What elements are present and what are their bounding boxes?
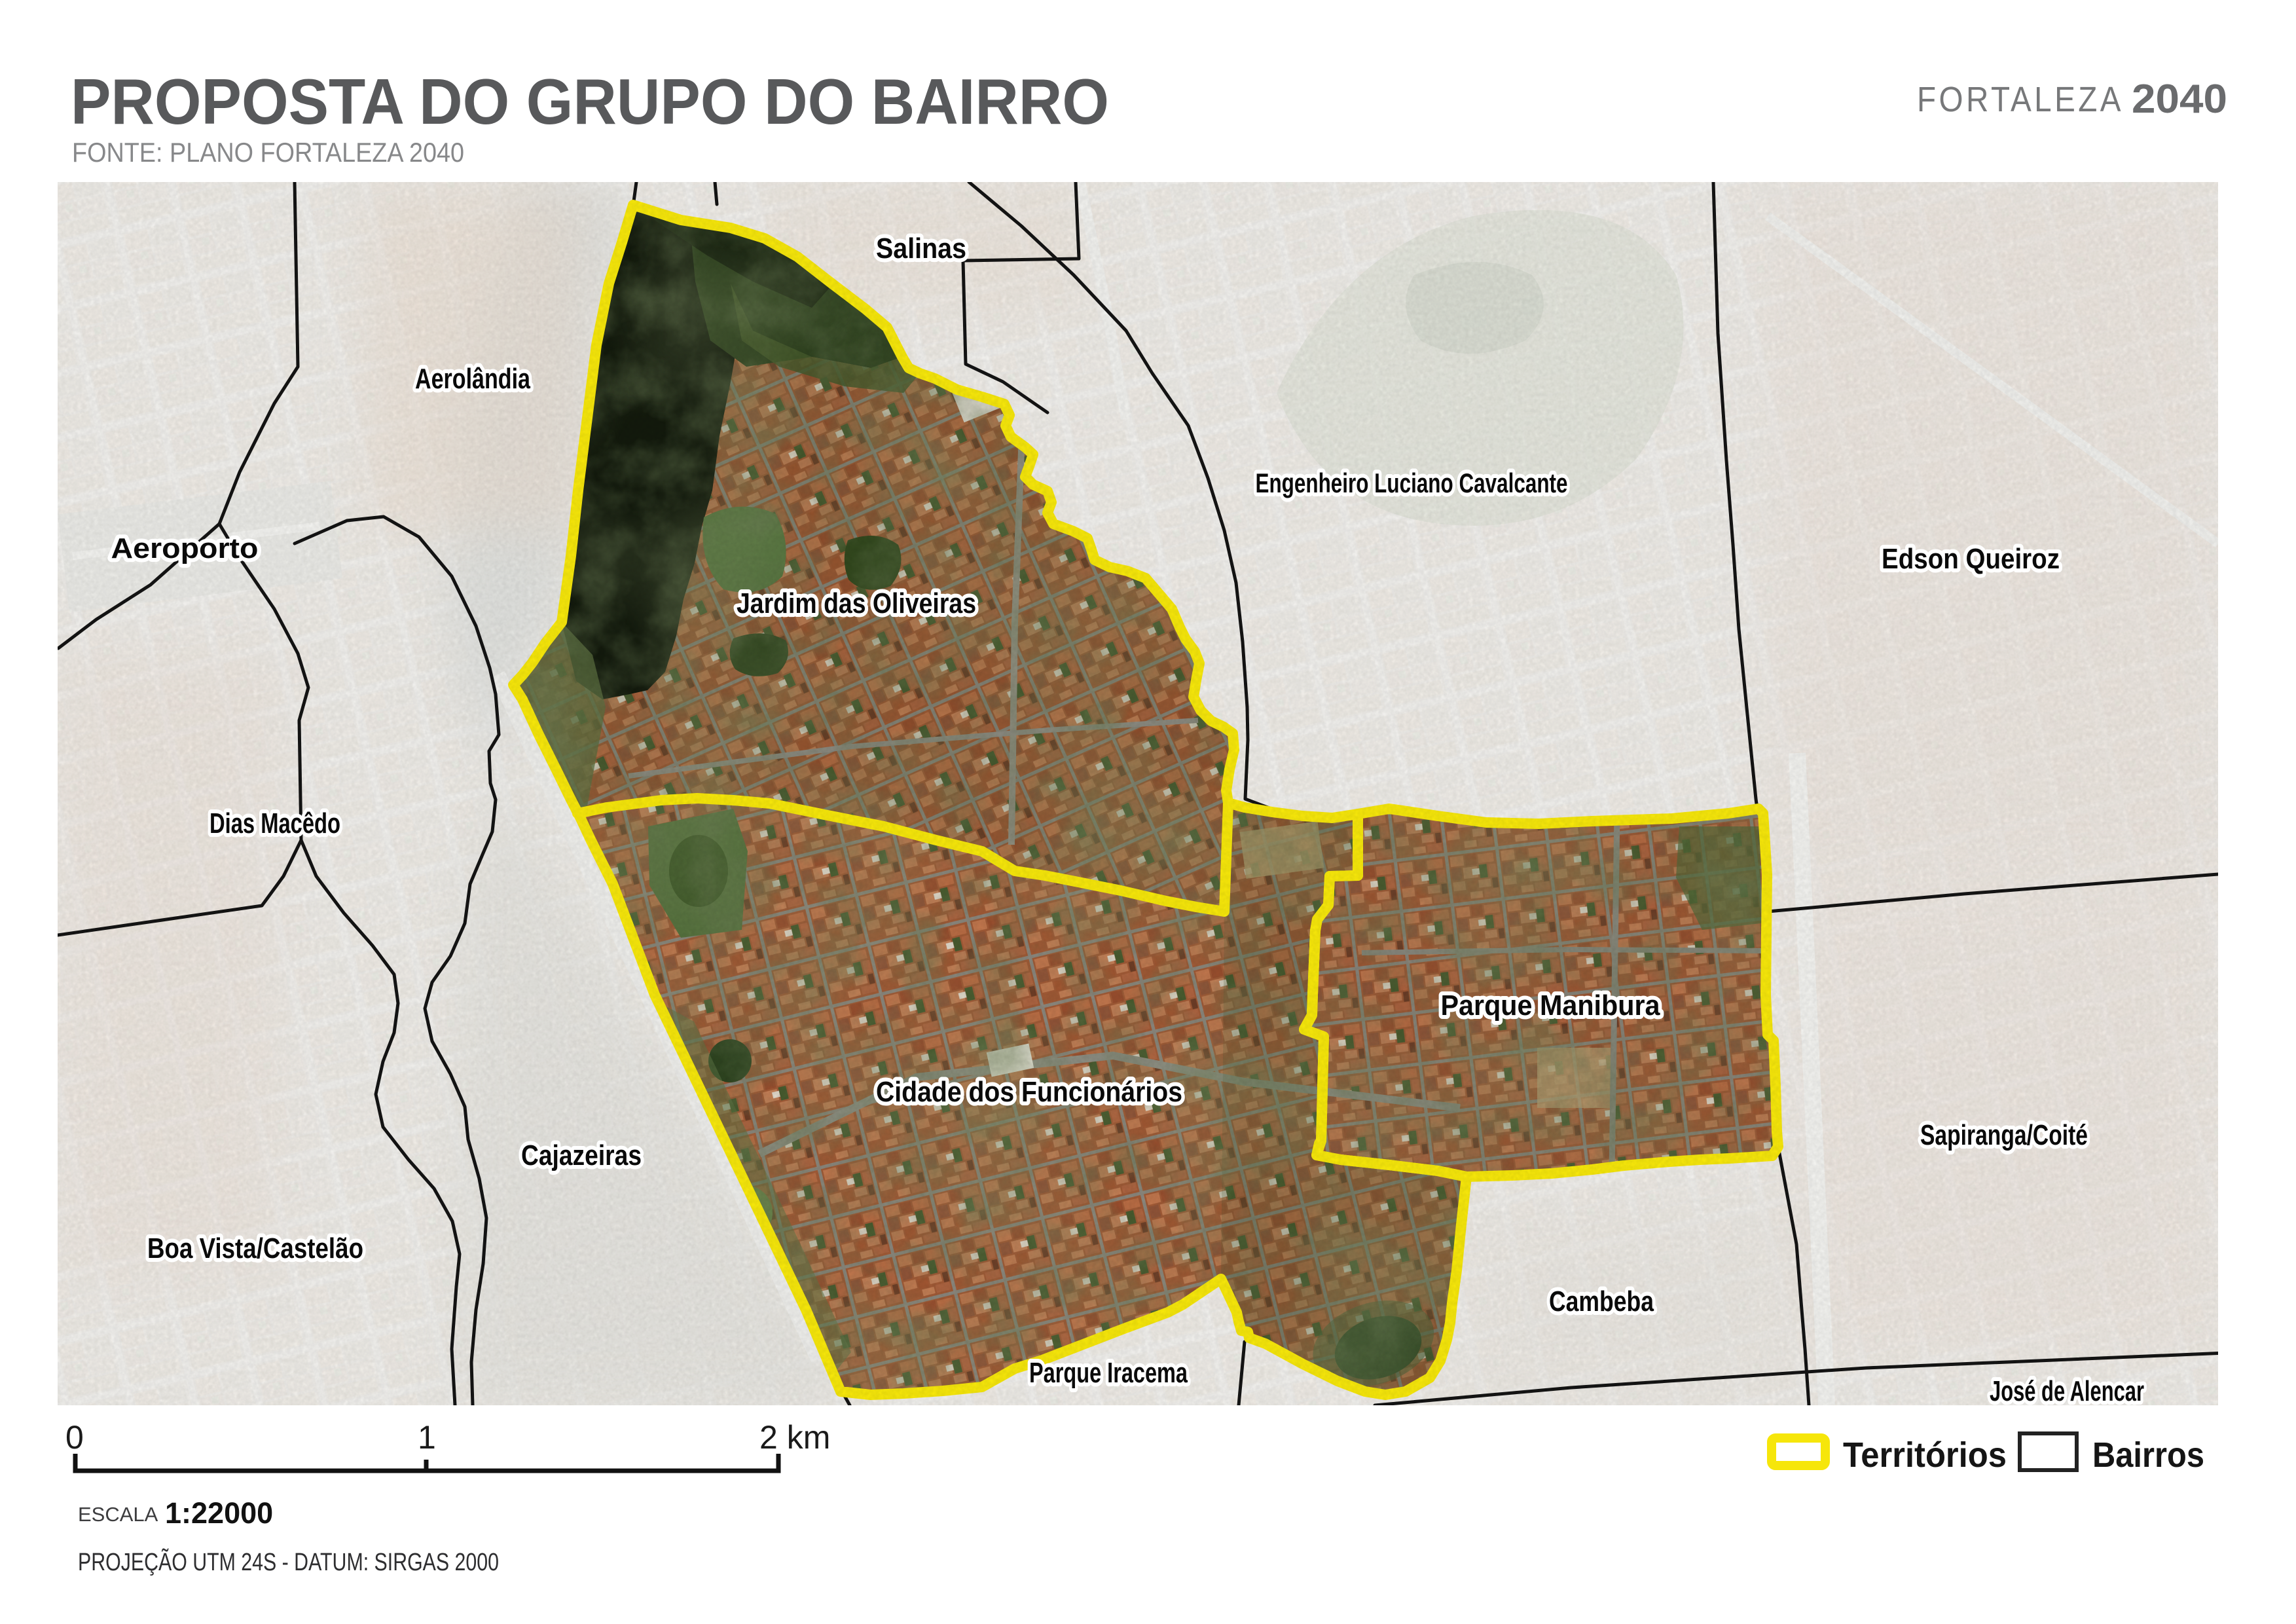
svg-text:Salinas: Salinas bbox=[876, 232, 966, 265]
svg-text:Parque Manibura: Parque Manibura bbox=[1441, 989, 1660, 1022]
svg-text:Territórios: Territórios bbox=[1843, 1435, 2007, 1475]
svg-text:Dias Macêdo: Dias Macêdo bbox=[210, 807, 340, 840]
svg-text:Bairros: Bairros bbox=[2092, 1435, 2204, 1475]
svg-text:Engenheiro Luciano Cavalcante: Engenheiro Luciano Cavalcante bbox=[1256, 468, 1568, 498]
svg-text:Aeroporto: Aeroporto bbox=[111, 532, 259, 564]
svg-text:1: 1 bbox=[418, 1419, 436, 1456]
svg-text:2040: 2040 bbox=[2132, 77, 2227, 122]
svg-text:0: 0 bbox=[65, 1419, 84, 1456]
svg-text:José de Alencar: José de Alencar bbox=[1990, 1375, 2144, 1407]
svg-text:Cajazeiras: Cajazeiras bbox=[521, 1139, 642, 1172]
svg-text:Edson Queiroz: Edson Queiroz bbox=[1882, 543, 2060, 575]
svg-text:Sapiranga/Coité: Sapiranga/Coité bbox=[1920, 1119, 2088, 1151]
svg-text:2 km: 2 km bbox=[759, 1419, 830, 1456]
svg-text:1:22000: 1:22000 bbox=[165, 1496, 273, 1530]
svg-text:FONTE: PLANO FORTALEZA 2040: FONTE: PLANO FORTALEZA 2040 bbox=[72, 137, 464, 168]
svg-text:Boa Vista/Castelão: Boa Vista/Castelão bbox=[147, 1232, 363, 1264]
svg-text:Parque Iracema: Parque Iracema bbox=[1029, 1357, 1188, 1389]
svg-text:Cambeba: Cambeba bbox=[1549, 1285, 1654, 1318]
svg-text:PROPOSTA DO GRUPO DO BAIRRO: PROPOSTA DO GRUPO DO BAIRRO bbox=[71, 65, 1109, 138]
svg-text:Jardim das Oliveiras: Jardim das Oliveiras bbox=[737, 587, 976, 619]
svg-text:Cidade dos Funcionários: Cidade dos Funcionários bbox=[876, 1076, 1182, 1108]
svg-text:FORTALEZA: FORTALEZA bbox=[1917, 80, 2124, 119]
svg-text:Aerolândia: Aerolândia bbox=[415, 363, 530, 395]
svg-text:PROJEÇÃO UTM 24S - DATUM: SIRG: PROJEÇÃO UTM 24S - DATUM: SIRGAS 2000 bbox=[78, 1548, 499, 1576]
svg-text:ESCALA: ESCALA bbox=[78, 1503, 158, 1526]
